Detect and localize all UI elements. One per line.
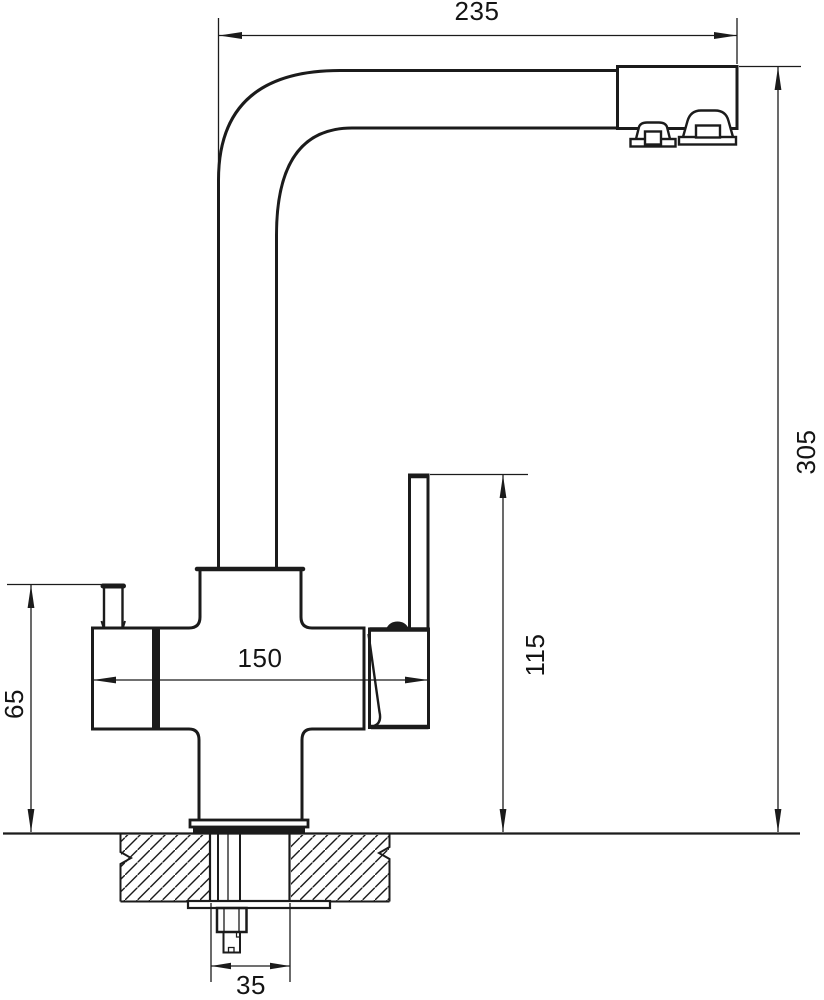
filter-knob [102, 586, 126, 628]
dimension-label-mounting-hole-diameter: 35 [236, 972, 266, 998]
faucet-body [93, 569, 365, 820]
spout-tube [219, 71, 619, 570]
threaded-stud [224, 932, 241, 953]
dimension-115 [430, 475, 528, 833]
mounting-nut [217, 908, 247, 932]
dimension-label-body-width: 150 [238, 645, 283, 671]
drawing-sheet: 235 305 150 115 65 35 [0, 0, 824, 1000]
countertop-section [3, 834, 800, 902]
mounting-hole-edges [210, 834, 290, 901]
base-flange [190, 820, 308, 833]
dimension-150 [93, 677, 428, 684]
handle-base [369, 622, 429, 728]
mounting-plate [188, 901, 330, 908]
dimension-label-overall-height: 305 [793, 430, 819, 475]
dimension-label-side-knob-height: 65 [1, 689, 27, 719]
dimension-label-spout-reach: 235 [455, 0, 500, 24]
left-arm-seam-band [152, 630, 160, 728]
lever-pivot-dome [386, 622, 409, 630]
faucet-line-art [0, 0, 824, 1000]
dimension-label-lever-height: 115 [522, 634, 548, 677]
handle-lever [409, 475, 430, 629]
base-gasket [193, 827, 305, 834]
spout-head [618, 67, 738, 147]
